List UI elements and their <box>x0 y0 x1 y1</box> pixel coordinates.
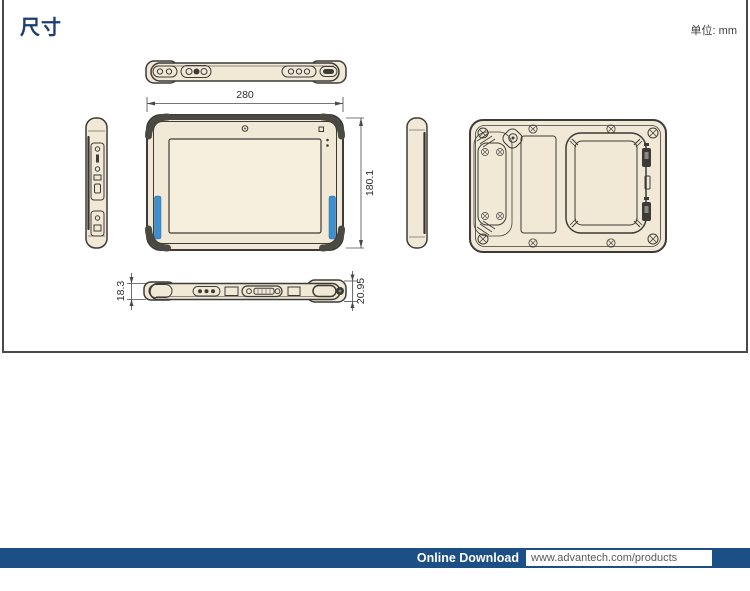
left-side-view-drawing <box>86 118 107 248</box>
dim-thickness-right-label: 20.95 <box>355 278 367 304</box>
top-view-drawing <box>146 61 346 83</box>
right-side-view-drawing <box>407 118 427 248</box>
back-view-drawing <box>470 120 666 252</box>
dim-width-label: 280 <box>147 89 343 101</box>
dim-thickness-left-label: 18.3 <box>115 281 127 301</box>
dim-height-label: 180.1 <box>364 170 376 196</box>
front-view-drawing <box>147 115 343 250</box>
online-download-label: Online Download <box>417 551 519 565</box>
footer-url[interactable]: www.advantech.com/products <box>526 550 712 566</box>
bottom-view-drawing <box>144 280 346 302</box>
footer-bar: Online Download www.advantech.com/produc… <box>0 548 750 568</box>
